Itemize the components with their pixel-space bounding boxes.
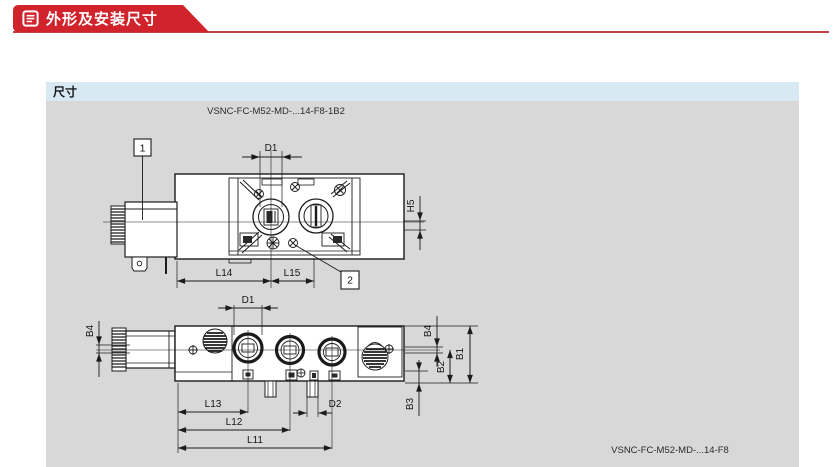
document-lines-icon — [22, 10, 39, 27]
solenoid-coil — [112, 328, 175, 371]
top-view-drawing: D1 H5 L14 L15 1 — [95, 135, 440, 300]
dim-label-h5: H5 — [406, 199, 417, 212]
front-view-drawing: D1 B4 B4 B2 B1 — [80, 295, 485, 467]
dim-label-l15: L15 — [284, 268, 301, 279]
dim-label-b2: B2 — [436, 360, 447, 373]
balloon-1-label: 1 — [140, 143, 146, 155]
dim-label-b1: B1 — [455, 347, 466, 360]
header-banner: 外形及安装尺寸 — [13, 5, 209, 32]
electrical-connector — [111, 202, 177, 274]
top-figure-caption: VSNC-FC-M52-MD-...14-F8-1B2 — [186, 106, 366, 117]
dimension-l11: L11 — [178, 435, 332, 448]
datasheet-page: 外形及安装尺寸 尺寸 VSNC-FC-M52-MD-...14-F8-1B2 V… — [0, 0, 834, 467]
dimension-l12: L12 — [178, 417, 290, 430]
section-label-bar: 尺寸 — [46, 82, 799, 101]
dim-label-l11: L11 — [247, 435, 263, 446]
mounting-feet — [265, 381, 318, 397]
dimension-b4-right: B4 — [423, 316, 437, 367]
dim-label-l13: L13 — [205, 399, 222, 410]
dim-label-b4-left: B4 — [85, 324, 96, 337]
pilot-port-circle-2 — [299, 199, 333, 233]
dim-label-b4-right: B4 — [423, 324, 434, 337]
dimension-b3: B3 — [405, 360, 419, 416]
dim-label-d1: D1 — [265, 143, 278, 154]
dimension-l13: L13 — [178, 399, 248, 412]
dimension-h5: H5 — [404, 196, 426, 250]
dim-label-l12: L12 — [226, 417, 243, 428]
balloon-2-label: 2 — [347, 275, 353, 287]
page-title: 外形及安装尺寸 — [46, 8, 158, 29]
dimension-b2: B2 — [436, 350, 450, 383]
dimension-d2: D2 — [293, 397, 342, 417]
dim-label-d1-front: D1 — [242, 295, 255, 306]
dim-label-l14: L14 — [216, 268, 233, 279]
dim-label-d2: D2 — [329, 399, 342, 410]
dim-label-b3: B3 — [405, 397, 416, 410]
dimension-b1: B1 — [455, 326, 470, 383]
knurl-ribs — [112, 331, 126, 367]
front-figure-caption: VSNC-FC-M52-MD-...14-F8 — [595, 445, 745, 456]
silencer-left — [203, 329, 227, 353]
section-label: 尺寸 — [46, 83, 77, 100]
